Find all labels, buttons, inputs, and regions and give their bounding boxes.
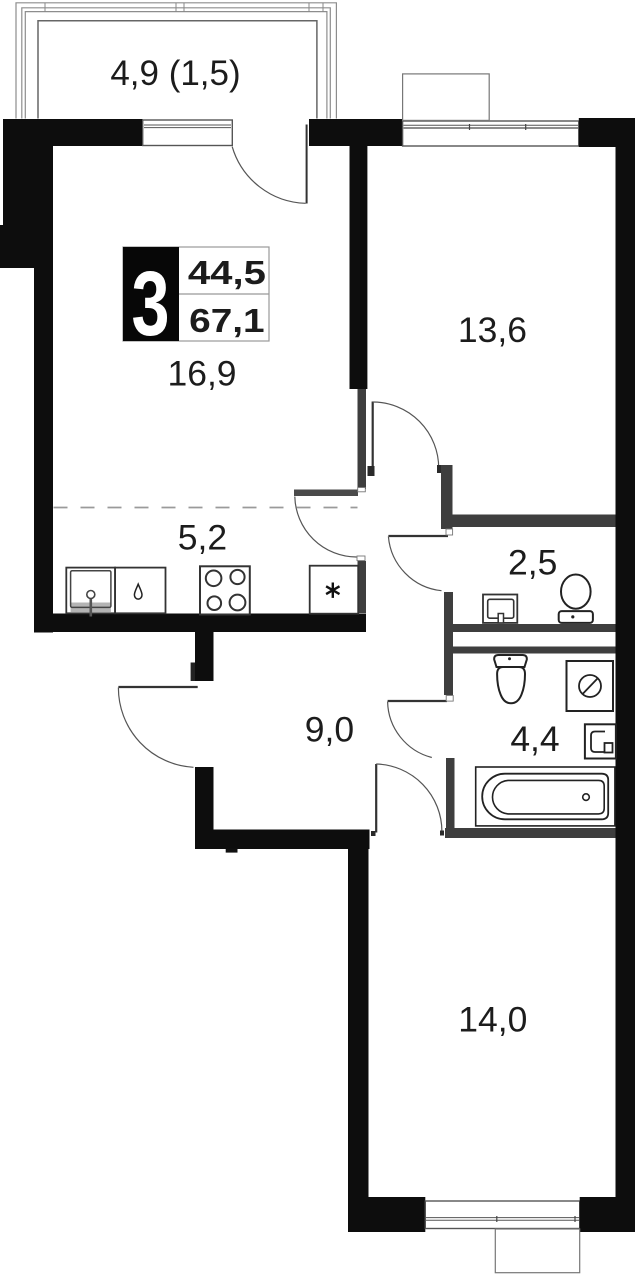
svg-text:4,4: 4,4 xyxy=(510,719,559,759)
svg-text:14,0: 14,0 xyxy=(458,1000,527,1040)
svg-text:2,5: 2,5 xyxy=(508,543,557,583)
svg-text:5,2: 5,2 xyxy=(178,518,227,558)
svg-text:3: 3 xyxy=(132,253,170,355)
svg-text:13,6: 13,6 xyxy=(458,310,527,350)
svg-text:9,0: 9,0 xyxy=(305,710,354,750)
svg-text:4,9 (1,5): 4,9 (1,5) xyxy=(110,54,240,93)
svg-text:67,1: 67,1 xyxy=(189,302,265,339)
svg-text:44,5: 44,5 xyxy=(188,254,266,291)
svg-text:16,9: 16,9 xyxy=(167,354,236,394)
